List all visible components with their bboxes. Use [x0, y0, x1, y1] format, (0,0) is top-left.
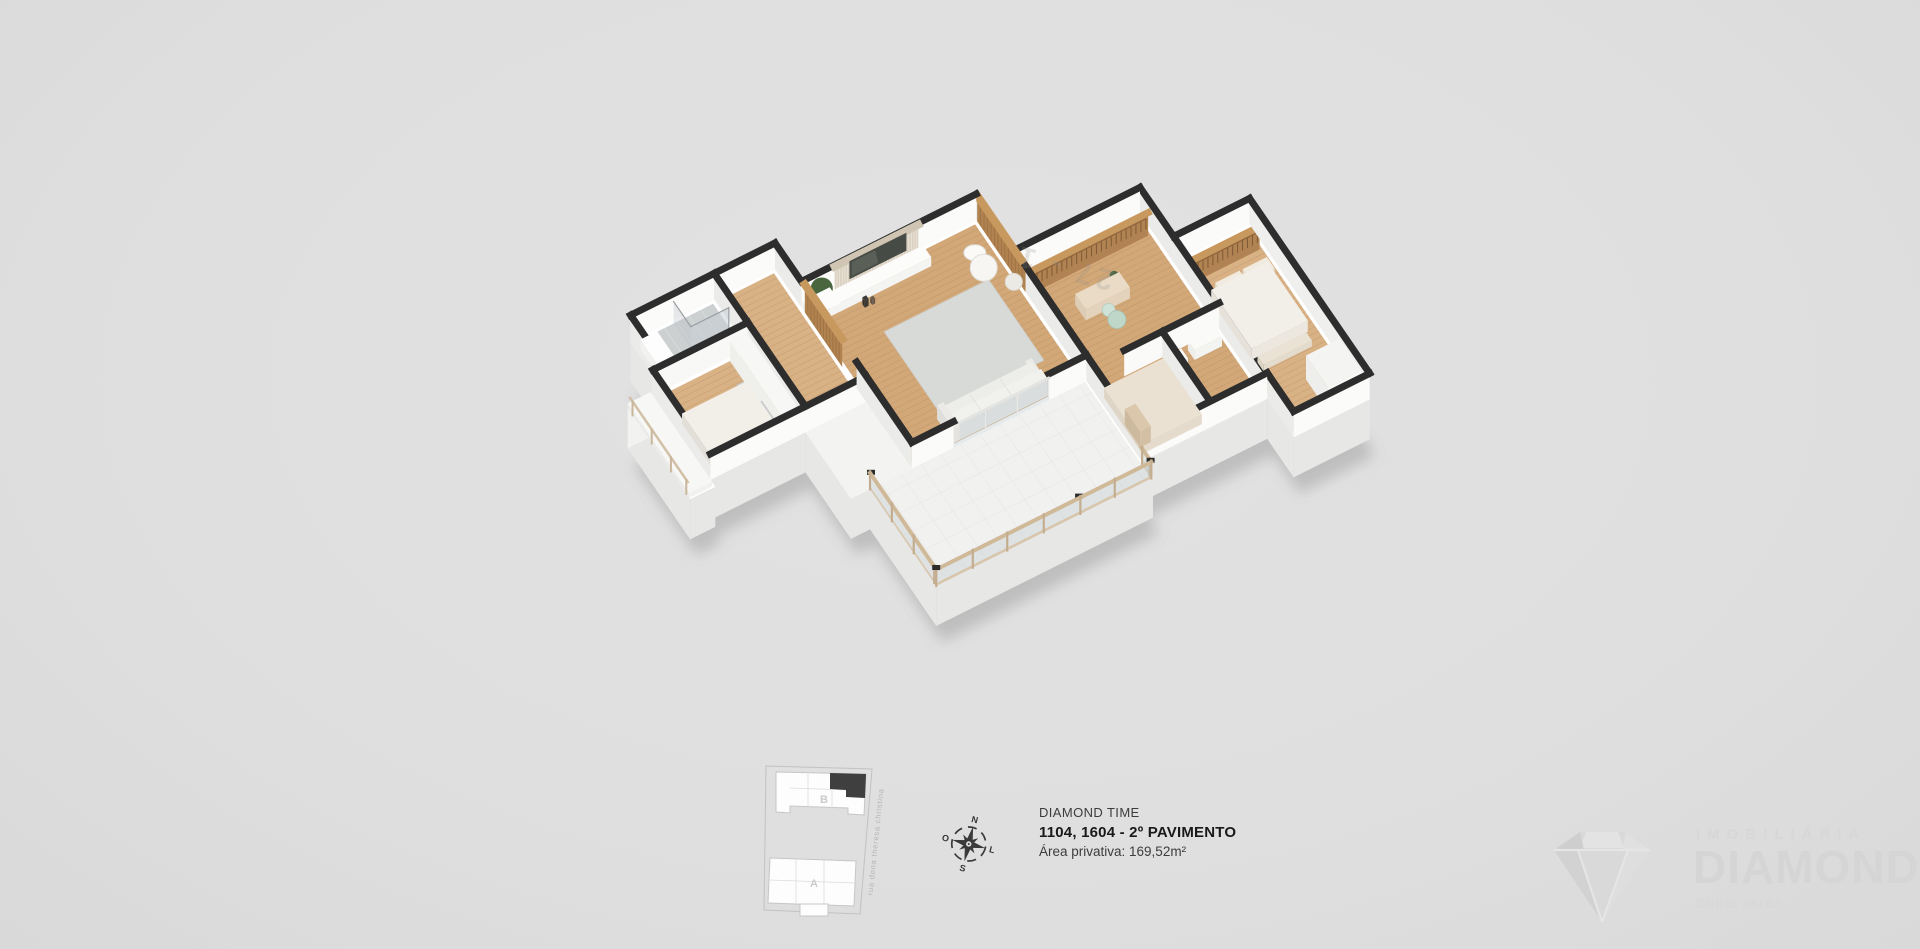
- unit-title: 1104, 1604 - 2º PAVIMENTO: [1039, 824, 1236, 841]
- building-b-outline: B: [776, 772, 866, 815]
- compass-south-label: S: [959, 863, 967, 874]
- compass: N O S L: [938, 812, 1000, 874]
- diamond-logo-icon: [1536, 824, 1671, 926]
- page-background: 27 - 1 B A rua dona theresa christina N …: [0, 0, 1920, 949]
- building-a-outline: A: [768, 858, 856, 916]
- private-area: Área privativa: 169,52m²: [1039, 844, 1236, 859]
- compass-north-label: N: [970, 814, 979, 825]
- brand-diamond: DIAMOND: [1693, 840, 1920, 894]
- site-plan: B A rua dona theresa christina: [756, 758, 906, 948]
- project-name: DIAMOND TIME: [1039, 805, 1236, 820]
- compass-west-label: O: [941, 832, 950, 843]
- brand-creci: CRECI 8610J: [1696, 897, 1781, 911]
- unit-info: DIAMOND TIME 1104, 1604 - 2º PAVIMENTO Á…: [1039, 805, 1236, 859]
- building-b-label: B: [820, 794, 828, 806]
- brand-watermark: IMOBILIÁRIA DIAMOND CRECI 8610J: [1530, 818, 1920, 938]
- building-a-label: A: [810, 878, 818, 890]
- street-label: rua dona theresa christina: [865, 788, 885, 896]
- compass-east-label: L: [988, 844, 996, 855]
- floorplan-3d-render: [0, 0, 1920, 949]
- compass-rose-icon: N O S L: [938, 812, 1000, 874]
